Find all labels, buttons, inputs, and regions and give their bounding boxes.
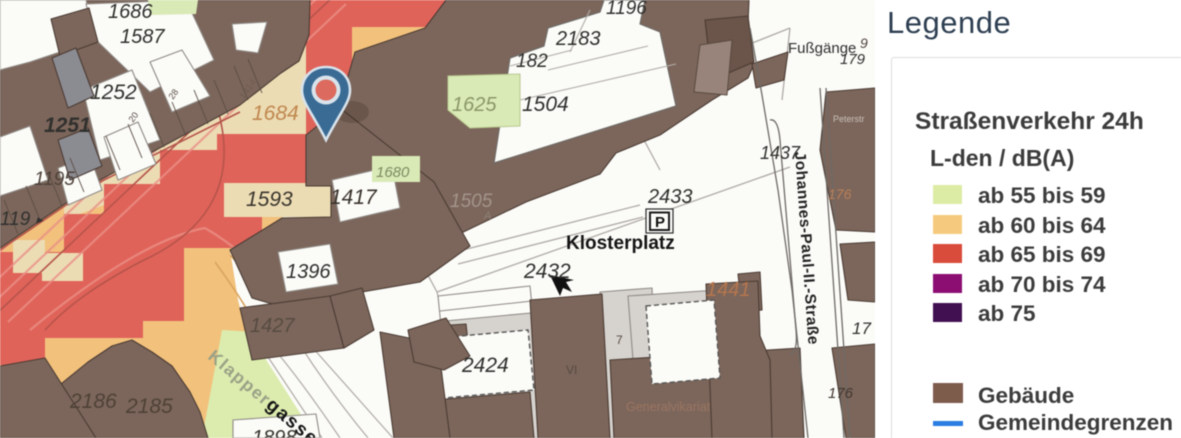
svg-text:A: A — [483, 210, 491, 222]
svg-text:176: 176 — [828, 186, 852, 202]
svg-text:1686: 1686 — [108, 1, 153, 23]
svg-text:Peterstr: Peterstr — [833, 114, 865, 124]
svg-text:2185: 2185 — [125, 395, 173, 418]
svg-text:2183: 2183 — [555, 28, 601, 50]
svg-text:182: 182 — [516, 51, 548, 72]
svg-text:1587: 1587 — [120, 26, 165, 48]
svg-text:7: 7 — [616, 333, 623, 347]
svg-text:1504: 1504 — [522, 93, 569, 116]
svg-text:Fußgänge: Fußgänge — [788, 40, 856, 57]
svg-text:1680: 1680 — [376, 164, 410, 181]
svg-text:Generalvikariat: Generalvikariat — [626, 400, 711, 414]
svg-text:2432: 2432 — [523, 260, 571, 283]
svg-text:2433: 2433 — [647, 186, 693, 208]
svg-text:1252: 1252 — [90, 81, 137, 104]
svg-text:1251: 1251 — [44, 114, 91, 137]
svg-text:1396: 1396 — [286, 261, 331, 283]
svg-text:2424: 2424 — [461, 354, 509, 377]
svg-text:2186: 2186 — [69, 390, 117, 413]
svg-text:1505: 1505 — [450, 191, 493, 212]
svg-text:119: 119 — [0, 209, 31, 230]
svg-text:1441: 1441 — [706, 279, 751, 301]
svg-text:1625: 1625 — [452, 94, 497, 116]
svg-text:9: 9 — [860, 35, 868, 51]
svg-text:1593: 1593 — [246, 188, 293, 211]
svg-text:Klosterplatz: Klosterplatz — [566, 233, 675, 254]
svg-text:1196: 1196 — [606, 0, 647, 19]
svg-text:176: 176 — [828, 385, 854, 402]
svg-text:1417: 1417 — [330, 186, 378, 209]
svg-text:P: P — [655, 214, 665, 231]
svg-text:17: 17 — [852, 319, 871, 338]
svg-text:VI: VI — [566, 363, 577, 377]
svg-text:1427: 1427 — [250, 315, 295, 337]
svg-text:1195: 1195 — [34, 169, 75, 190]
svg-text:1684: 1684 — [252, 102, 299, 125]
